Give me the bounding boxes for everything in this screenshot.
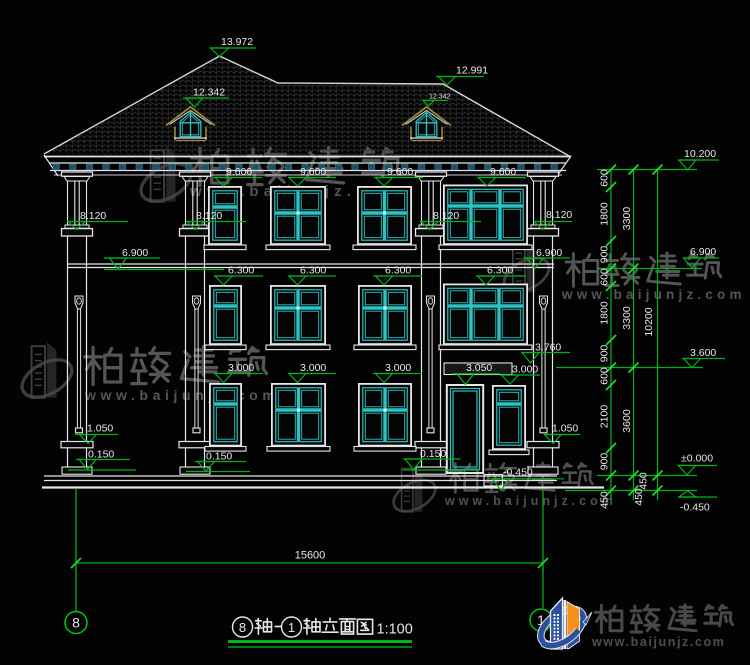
svg-text:6.300: 6.300	[487, 265, 513, 277]
svg-text:8.120: 8.120	[80, 210, 106, 222]
svg-text:13.972: 13.972	[221, 36, 253, 48]
svg-text:9.600: 9.600	[300, 166, 326, 178]
svg-text:3600: 3600	[621, 409, 633, 433]
svg-text:3.000: 3.000	[512, 364, 538, 376]
svg-text:6.300: 6.300	[228, 265, 254, 277]
svg-text:6.900: 6.900	[122, 247, 148, 259]
svg-text:12.991: 12.991	[456, 65, 488, 77]
svg-text:www.baijunjz.com: www.baijunjz.com	[591, 635, 725, 649]
svg-text:-0.450: -0.450	[503, 467, 533, 479]
svg-text:3.600: 3.600	[690, 347, 716, 359]
svg-text:6.300: 6.300	[300, 265, 326, 277]
svg-text:1.050: 1.050	[552, 423, 578, 435]
svg-text:8.120: 8.120	[433, 210, 459, 222]
svg-text:www.baijunjz.com: www.baijunjz.com	[84, 387, 279, 403]
svg-text:3300: 3300	[621, 306, 633, 330]
svg-text:6.300: 6.300	[385, 265, 411, 277]
svg-text:1: 1	[288, 620, 295, 635]
svg-text:-0.450: -0.450	[680, 502, 710, 514]
svg-text:900: 900	[599, 246, 611, 264]
svg-text:0.150: 0.150	[88, 449, 114, 461]
svg-text:10.200: 10.200	[684, 148, 716, 160]
svg-text:1.050: 1.050	[87, 423, 113, 435]
svg-text:6.900: 6.900	[536, 247, 562, 259]
svg-text:450: 450	[599, 491, 611, 509]
svg-text:900: 900	[599, 453, 611, 471]
svg-text:8.120: 8.120	[196, 210, 222, 222]
svg-text:8: 8	[239, 620, 246, 635]
svg-text:12.342: 12.342	[429, 94, 451, 101]
svg-text:450: 450	[633, 488, 645, 506]
svg-text:0.150: 0.150	[206, 451, 232, 463]
svg-text:900: 900	[599, 345, 611, 363]
svg-text:3.000: 3.000	[228, 362, 254, 374]
svg-text:www.baijunjz.com: www.baijunjz.com	[444, 494, 617, 508]
svg-text:8.120: 8.120	[546, 209, 572, 221]
svg-text:8: 8	[72, 615, 80, 631]
svg-text:2100: 2100	[599, 405, 611, 429]
svg-text:3.050: 3.050	[466, 362, 492, 374]
svg-text:9.600: 9.600	[226, 166, 252, 178]
svg-text:3.000: 3.000	[385, 362, 411, 374]
svg-text:600: 600	[599, 169, 611, 187]
svg-text:6.900: 6.900	[690, 246, 716, 258]
svg-text:15600: 15600	[295, 550, 326, 562]
svg-text:9.600: 9.600	[387, 166, 413, 178]
svg-text:10200: 10200	[643, 307, 655, 336]
svg-text:9.600: 9.600	[490, 166, 516, 178]
svg-text:3.000: 3.000	[300, 362, 326, 374]
svg-text:0.150: 0.150	[420, 448, 446, 460]
svg-text:±0.000: ±0.000	[681, 453, 713, 465]
svg-text:1800: 1800	[599, 301, 611, 325]
svg-text:12.342: 12.342	[193, 87, 225, 99]
svg-text:1:100: 1:100	[377, 622, 413, 638]
svg-text:600: 600	[599, 367, 611, 385]
svg-text:3300: 3300	[621, 207, 633, 231]
svg-text:www.baijunjz.com: www.baijunjz.com	[561, 287, 746, 302]
svg-text:1800: 1800	[599, 202, 611, 226]
svg-text:600: 600	[599, 268, 611, 286]
svg-text:450: 450	[638, 472, 650, 490]
svg-text:3.760: 3.760	[535, 342, 561, 354]
